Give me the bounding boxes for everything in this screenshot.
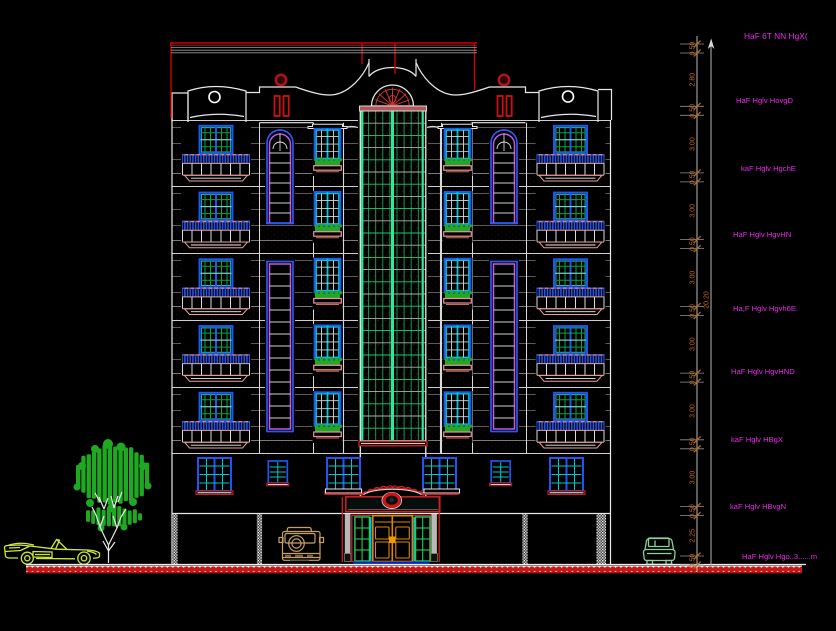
svg-text:3.00: 3.00 — [690, 471, 697, 485]
svg-text:3.00: 3.00 — [690, 271, 697, 285]
svg-text:kaF Hglv HBgX: kaF Hglv HBgX — [731, 435, 783, 444]
svg-text:3.00: 3.00 — [690, 204, 697, 218]
svg-text:0.50: 0.50 — [690, 104, 697, 118]
svg-text:HaF Hglv Hgo..3......m: HaF Hglv Hgo..3......m — [742, 552, 817, 561]
svg-text:Ha,F Hglv Hgvh6E.: Ha,F Hglv Hgvh6E. — [733, 304, 798, 313]
svg-text:HaF Hglv HgvHN: HaF Hglv HgvHN — [733, 230, 791, 239]
svg-text:HaF Hglv HovgD: HaF Hglv HovgD — [736, 96, 793, 105]
svg-text:0.50: 0.50 — [690, 437, 697, 451]
svg-text:0.50: 0.50 — [690, 304, 697, 318]
svg-text:kaF Hglv HgchE: kaF Hglv HgchE — [741, 164, 796, 173]
svg-text:0.50: 0.50 — [690, 554, 697, 568]
svg-text:kaF Hglv HBvgN: kaF Hglv HBvgN — [730, 502, 786, 511]
svg-text:20.20: 20.20 — [704, 291, 711, 309]
svg-text:3.00: 3.00 — [690, 404, 697, 418]
svg-text:0.50: 0.50 — [690, 371, 697, 385]
svg-text:0.50: 0.50 — [690, 42, 697, 56]
svg-text:2.80: 2.80 — [690, 73, 697, 87]
svg-text:0.50: 0.50 — [690, 237, 697, 251]
svg-text:0.50: 0.50 — [690, 170, 697, 184]
svg-text:HaF 6T NN HgX(: HaF 6T NN HgX( — [744, 31, 808, 41]
svg-text:0.50: 0.50 — [690, 504, 697, 518]
svg-text:3.00: 3.00 — [690, 137, 697, 151]
svg-text:HaF Hglv HgvHND: HaF Hglv HgvHND — [731, 367, 795, 376]
svg-text:2.25: 2.25 — [690, 529, 697, 543]
svg-text:3.00: 3.00 — [690, 337, 697, 351]
